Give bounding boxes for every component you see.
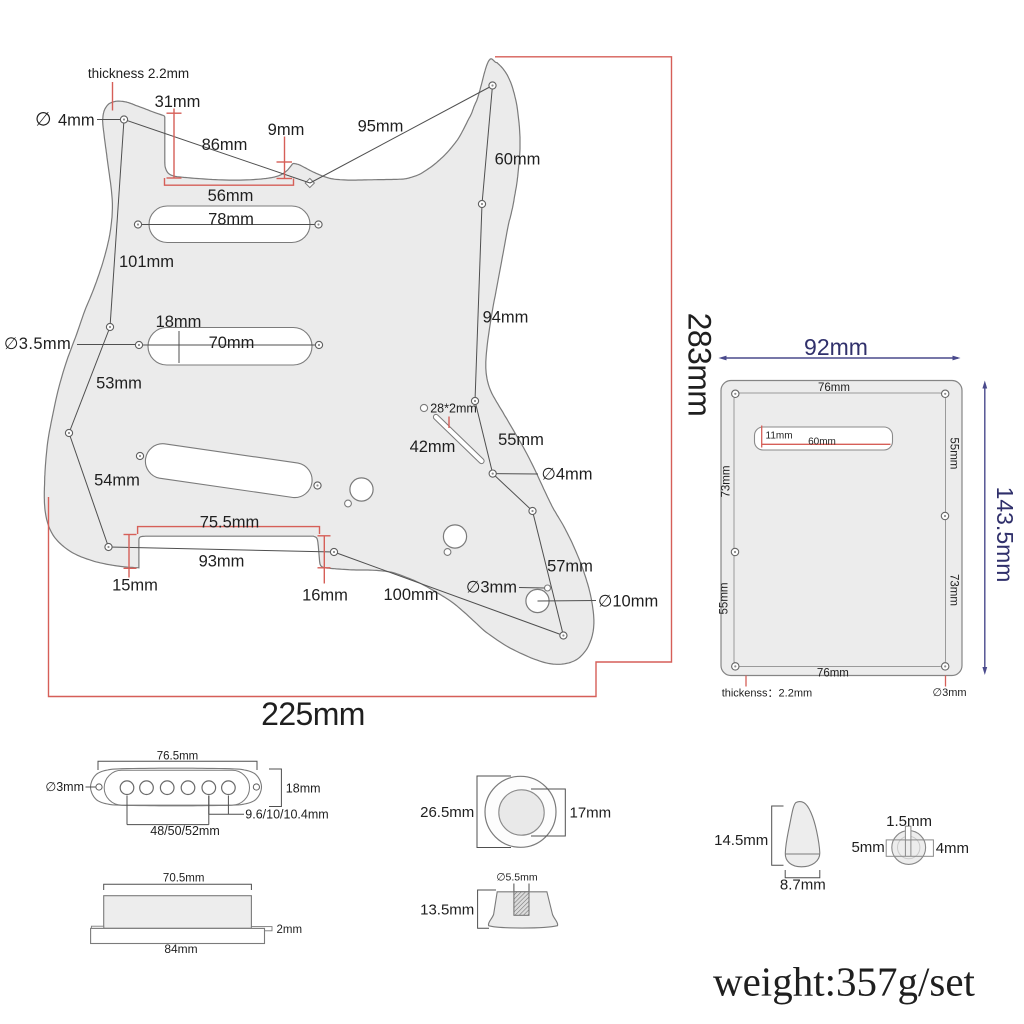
svg-text:76mm: 76mm: [817, 668, 849, 680]
svg-text:73mm: 73mm: [948, 574, 960, 606]
svg-text:2mm: 2mm: [277, 924, 303, 936]
svg-text:28*2mm: 28*2mm: [430, 402, 477, 416]
svg-text:14.5mm: 14.5mm: [714, 832, 768, 849]
svg-text:143.5mm: 143.5mm: [992, 487, 1018, 583]
svg-text:∅3.5mm: ∅3.5mm: [4, 335, 71, 353]
svg-text:93mm: 93mm: [199, 553, 245, 571]
svg-text:48/50/52mm: 48/50/52mm: [150, 824, 219, 838]
svg-text:92mm: 92mm: [804, 334, 868, 360]
svg-text:86mm: 86mm: [202, 136, 248, 154]
svg-text:95mm: 95mm: [358, 118, 404, 136]
svg-text:16mm: 16mm: [302, 587, 348, 605]
svg-text:18mm: 18mm: [156, 313, 202, 331]
svg-text:∅: ∅: [35, 110, 52, 131]
svg-text:∅3mm: ∅3mm: [933, 687, 967, 699]
svg-text:55mm: 55mm: [948, 437, 960, 469]
svg-text:70mm: 70mm: [209, 334, 255, 352]
svg-text:31mm: 31mm: [155, 93, 201, 111]
svg-text:84mm: 84mm: [164, 942, 197, 956]
svg-text:18mm: 18mm: [286, 782, 321, 796]
svg-text:55mm: 55mm: [498, 431, 544, 449]
svg-text:26.5mm: 26.5mm: [420, 804, 474, 821]
svg-text:101mm: 101mm: [119, 253, 174, 271]
svg-text:weight:357g/set: weight:357g/set: [713, 959, 976, 1005]
svg-text:53mm: 53mm: [96, 375, 142, 393]
svg-text:4mm: 4mm: [936, 840, 969, 857]
svg-text:9mm: 9mm: [268, 121, 305, 139]
svg-text:9.6/10/10.4mm: 9.6/10/10.4mm: [245, 808, 328, 822]
svg-text:225mm: 225mm: [261, 696, 365, 732]
svg-text:thickenss：2.2mm: thickenss：2.2mm: [722, 688, 812, 700]
svg-text:73mm: 73mm: [721, 466, 733, 498]
svg-text:1.5mm: 1.5mm: [886, 813, 932, 830]
svg-text:13.5mm: 13.5mm: [420, 902, 474, 919]
svg-text:4mm: 4mm: [58, 112, 95, 130]
svg-text:75.5mm: 75.5mm: [200, 514, 260, 532]
svg-text:60mm: 60mm: [808, 437, 836, 448]
svg-text:17mm: 17mm: [570, 805, 612, 822]
svg-text:5mm: 5mm: [851, 839, 884, 856]
svg-text:15mm: 15mm: [112, 577, 158, 595]
svg-text:56mm: 56mm: [208, 187, 254, 205]
svg-text:78mm: 78mm: [208, 211, 254, 229]
svg-text:76mm: 76mm: [818, 382, 850, 394]
svg-text:100mm: 100mm: [383, 586, 438, 604]
svg-text:54mm: 54mm: [94, 472, 140, 490]
svg-text:∅3mm: ∅3mm: [466, 579, 517, 597]
svg-text:57mm: 57mm: [547, 558, 593, 576]
svg-text:60mm: 60mm: [495, 151, 541, 169]
svg-text:∅4mm: ∅4mm: [542, 466, 593, 484]
svg-text:8.7mm: 8.7mm: [780, 877, 826, 894]
svg-text:76.5mm: 76.5mm: [157, 751, 199, 763]
svg-text:283mm: 283mm: [682, 313, 718, 417]
svg-text:11mm: 11mm: [766, 431, 793, 442]
svg-text:thickness 2.2mm: thickness 2.2mm: [88, 66, 189, 81]
svg-text:55mm: 55mm: [718, 583, 730, 615]
svg-text:∅10mm: ∅10mm: [598, 593, 658, 611]
svg-text:∅3mm: ∅3mm: [45, 780, 84, 794]
svg-text:94mm: 94mm: [483, 309, 529, 327]
svg-text:42mm: 42mm: [410, 438, 456, 456]
svg-text:∅5.5mm: ∅5.5mm: [496, 872, 537, 884]
svg-text:70.5mm: 70.5mm: [163, 873, 205, 885]
